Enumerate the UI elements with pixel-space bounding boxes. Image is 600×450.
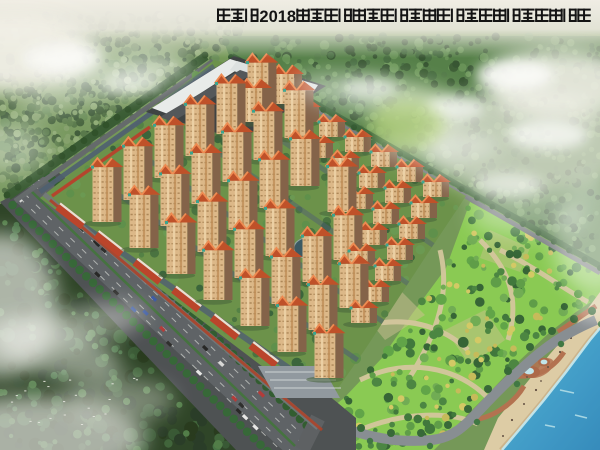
svg-text:2018: 2018 (259, 8, 296, 26)
